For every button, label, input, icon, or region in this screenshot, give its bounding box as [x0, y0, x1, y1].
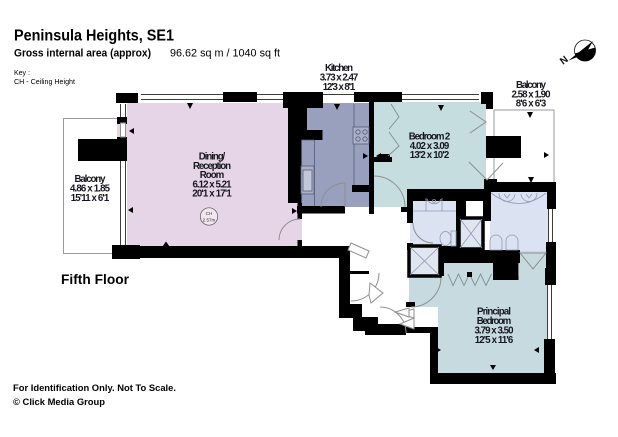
- svg-text:15'11 x 6'1: 15'11 x 6'1: [71, 193, 110, 204]
- svg-text:20'1 x 17'1: 20'1 x 17'1: [192, 189, 232, 200]
- svg-text:For Identification Only. Not T: For Identification Only. Not To Scale.: [13, 383, 176, 394]
- svg-text:Fifth Floor: Fifth Floor: [61, 271, 130, 287]
- svg-text:CH - Ceiling Height: CH - Ceiling Height: [14, 79, 75, 86]
- svg-text:Gross internal area (approx): Gross internal area (approx): [14, 48, 151, 60]
- svg-text:8'6 x 6'3: 8'6 x 6'3: [516, 99, 547, 110]
- svg-text:CH: CH: [206, 211, 213, 216]
- svg-text:13'2 x 10'2: 13'2 x 10'2: [410, 150, 450, 161]
- svg-text:12'5 x 11'6: 12'5 x 11'6: [475, 335, 514, 346]
- svg-text:© Click Media Group: © Click Media Group: [13, 397, 105, 408]
- svg-text:Peninsula Heights, SE1: Peninsula Heights, SE1: [14, 28, 174, 45]
- svg-text:2.57m: 2.57m: [203, 218, 216, 223]
- svg-text:96.62 sq m / 1040 sq ft: 96.62 sq m / 1040 sq ft: [170, 48, 281, 60]
- svg-text:Key :: Key :: [14, 70, 30, 77]
- svg-text:12'3 x 8'1: 12'3 x 8'1: [323, 82, 356, 93]
